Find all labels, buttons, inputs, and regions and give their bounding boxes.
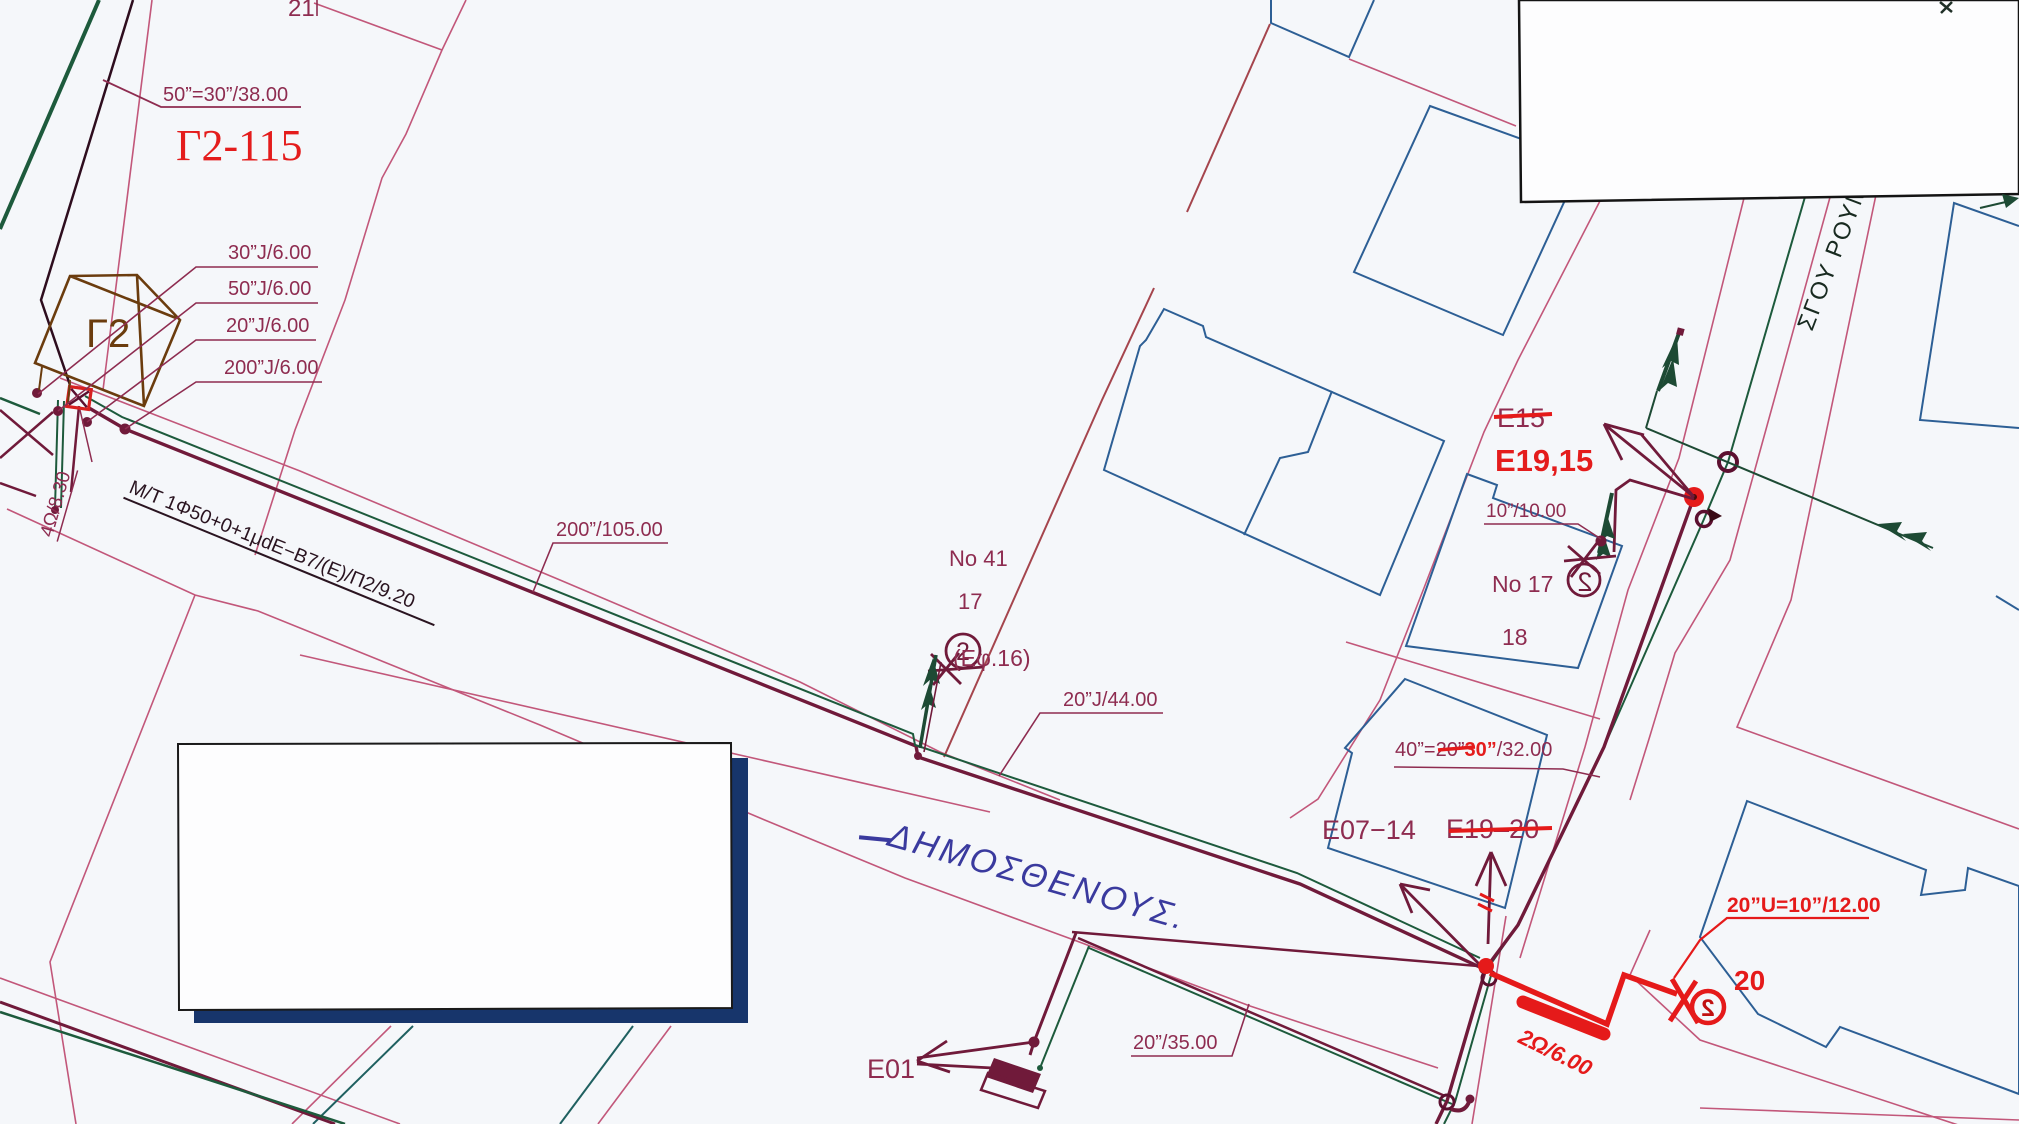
svg-text:40”=20”30”/32.00: 40”=20”30”/32.00 <box>1395 739 1552 761</box>
svg-text:21: 21 <box>288 0 315 22</box>
svg-text:E19,15: E19,15 <box>1495 443 1593 478</box>
svg-text:20”J/44.00: 20”J/44.00 <box>1063 689 1158 711</box>
svg-text:50”=30”/38.00: 50”=30”/38.00 <box>163 84 288 106</box>
svg-text:2: 2 <box>1701 995 1714 1022</box>
svg-text:(Εφ.16): (Εφ.16) <box>953 645 1031 671</box>
svg-text:2: 2 <box>1577 567 1592 597</box>
svg-text:Γ2-115: Γ2-115 <box>176 121 302 170</box>
svg-text:10”/10.00: 10”/10.00 <box>1486 501 1566 522</box>
svg-text:E01: E01 <box>867 1054 915 1084</box>
svg-text:17: 17 <box>958 589 982 614</box>
svg-text:200”J/6.00: 200”J/6.00 <box>224 357 319 379</box>
svg-text:50”J/6.00: 50”J/6.00 <box>228 278 311 300</box>
svg-text:No 41: No 41 <box>949 546 1008 571</box>
svg-text:18: 18 <box>1502 624 1528 650</box>
svg-text:200”/105.00: 200”/105.00 <box>556 519 663 541</box>
svg-text:20”/35.00: 20”/35.00 <box>1133 1032 1218 1054</box>
svg-text:No 17: No 17 <box>1492 571 1553 597</box>
svg-text:20”U=10”/12.00: 20”U=10”/12.00 <box>1727 894 1881 917</box>
svg-text:20: 20 <box>1734 965 1765 996</box>
svg-text:20”J/6.00: 20”J/6.00 <box>226 315 309 337</box>
svg-text:30”J/6.00: 30”J/6.00 <box>228 242 311 264</box>
svg-text:E07−14: E07−14 <box>1322 815 1416 845</box>
